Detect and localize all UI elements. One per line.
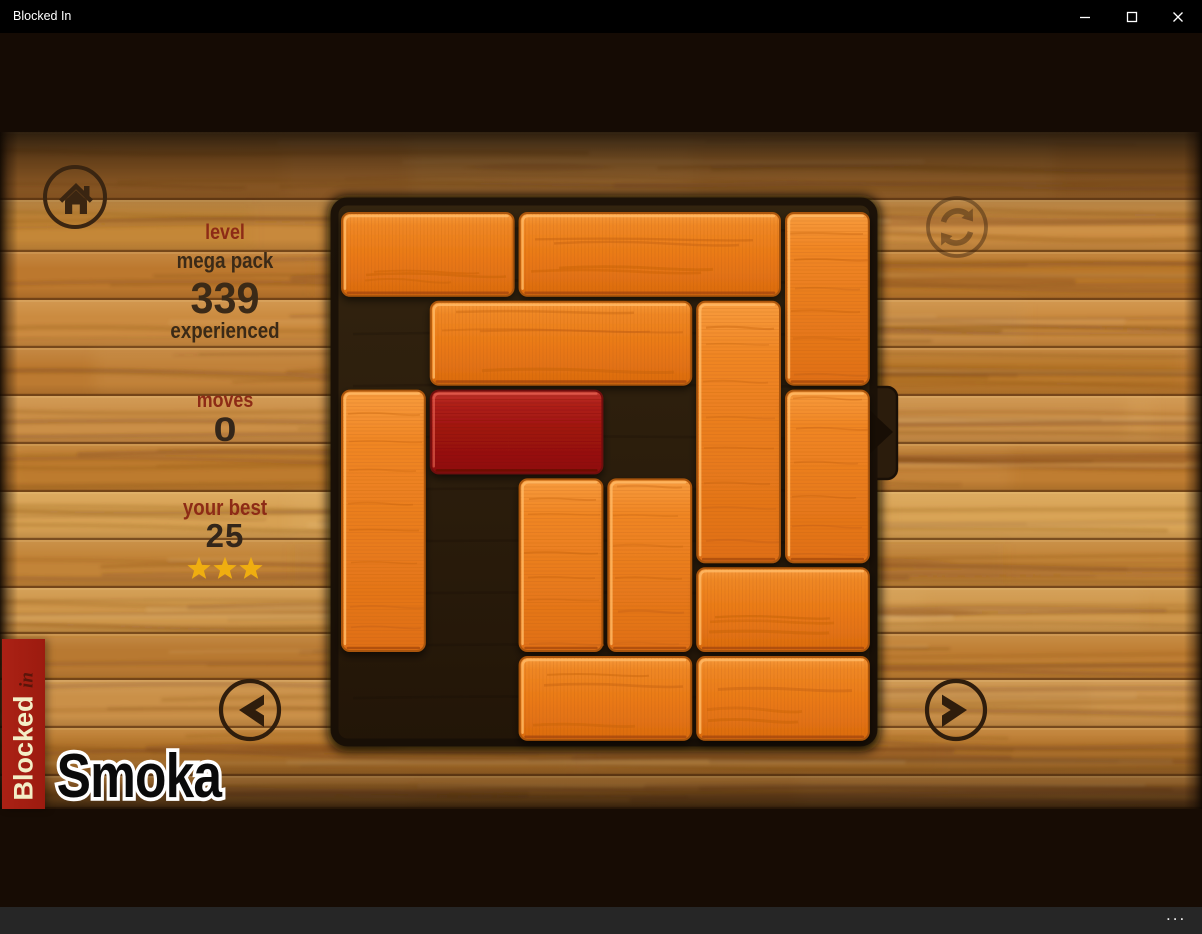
svg-text:Smoka: Smoka [57,742,224,812]
